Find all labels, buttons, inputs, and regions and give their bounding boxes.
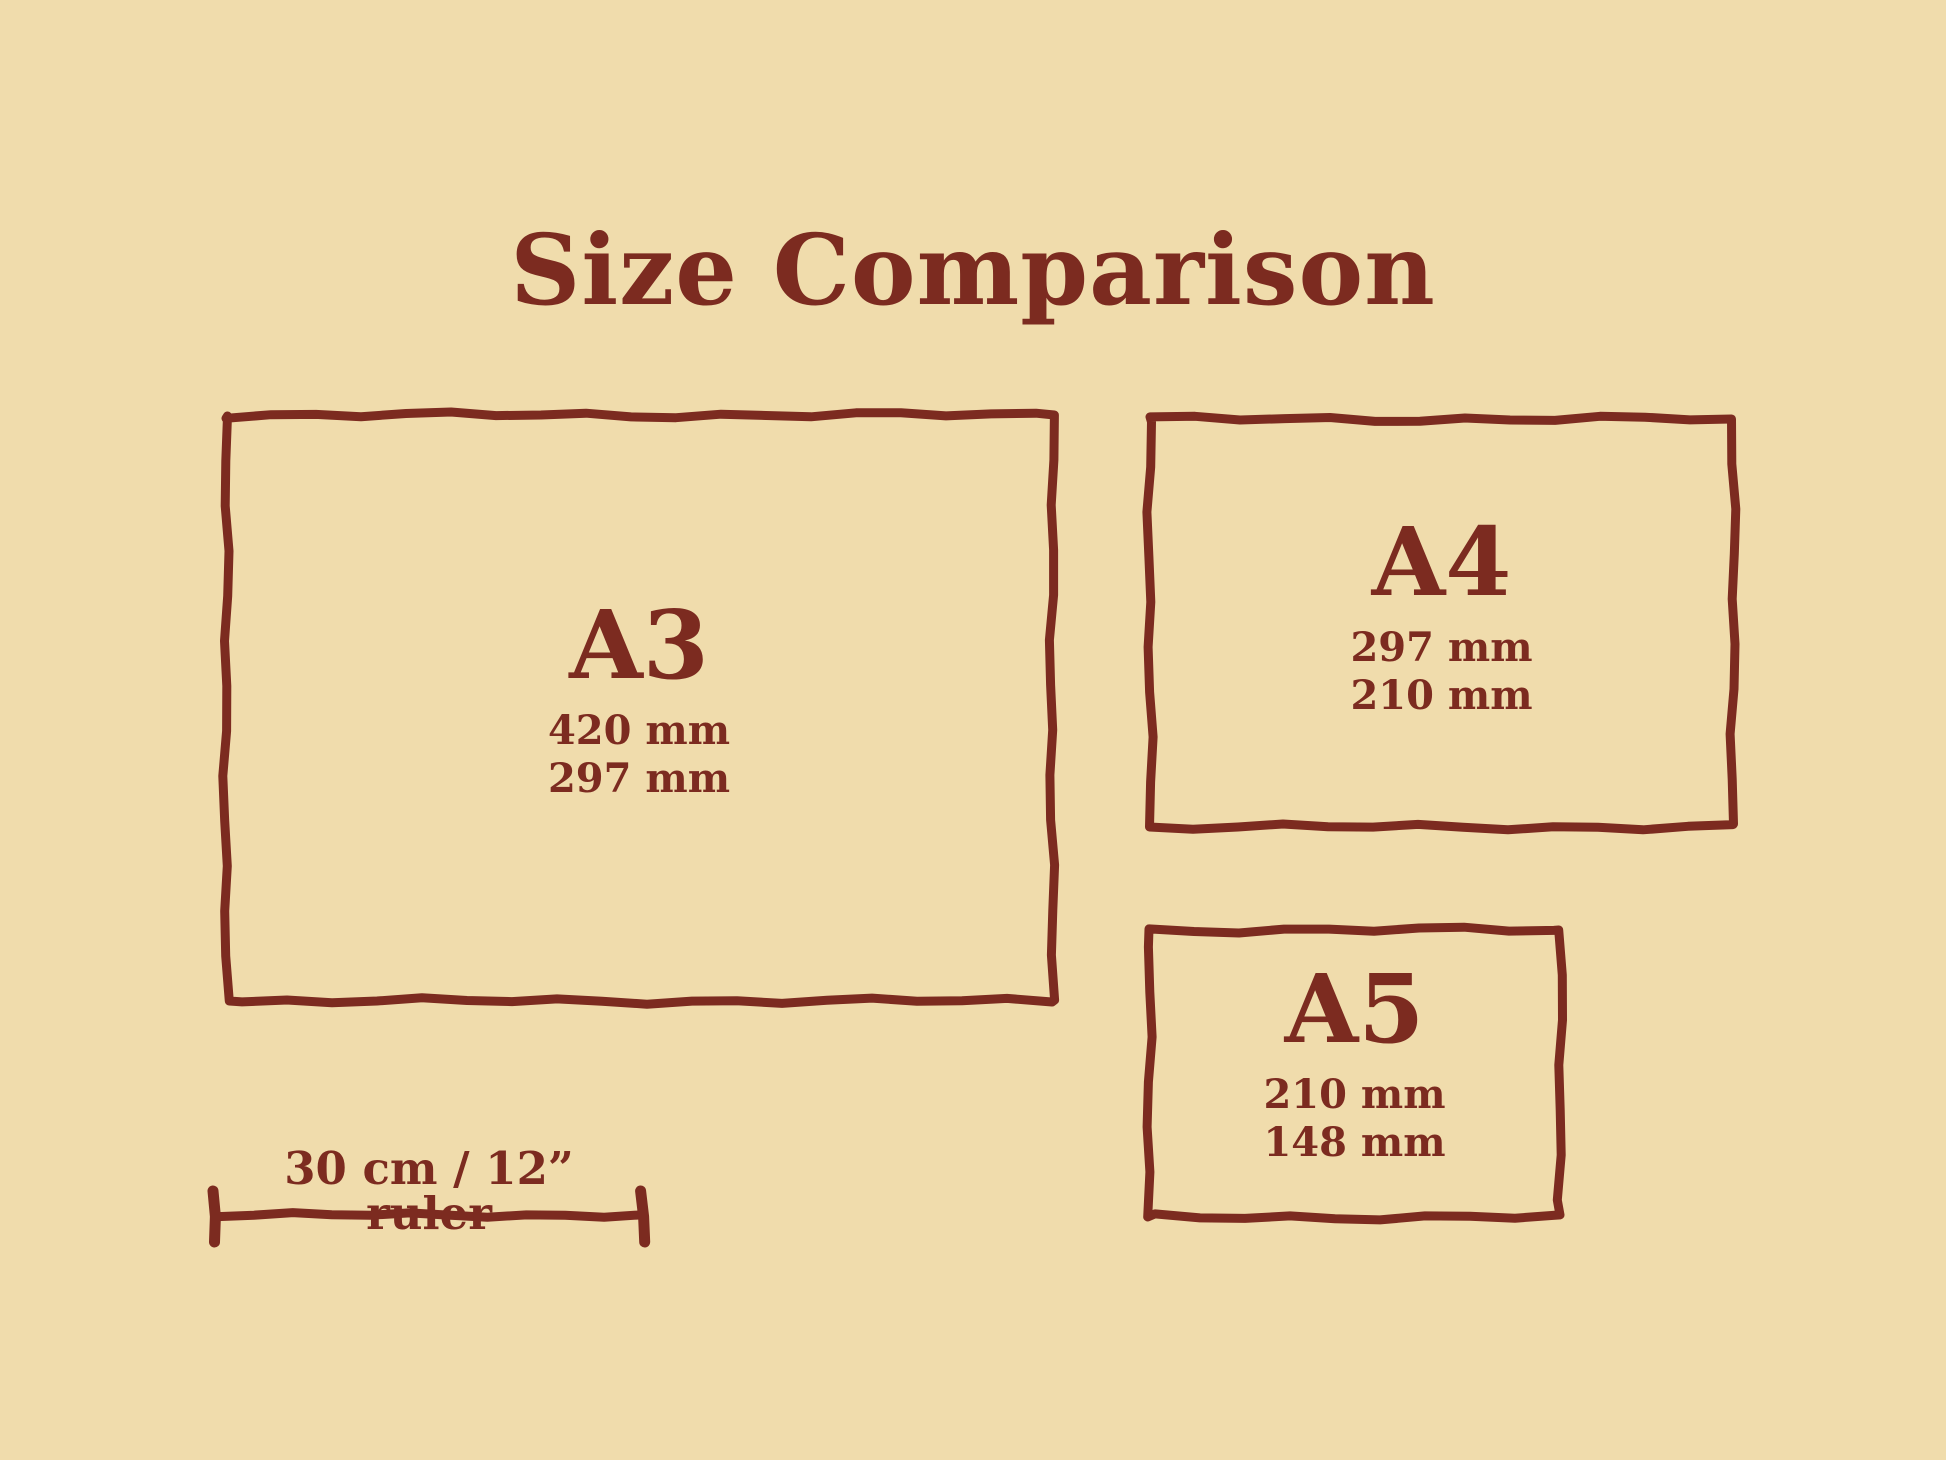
size-comparison-infographic: Size Comparison A3 420 mm 297 mm A4 297 … (0, 0, 1946, 1460)
ruler-label: 30 cm / 12” ruler (215, 1146, 643, 1236)
a3-size-name: A3 (226, 598, 1052, 693)
a3-height-label: 297 mm (226, 755, 1052, 803)
a4-height-label: 210 mm (1150, 672, 1733, 720)
a4-size-name: A4 (1150, 515, 1733, 610)
a3-label-group: A3 420 mm 297 mm (226, 598, 1052, 803)
a3-width-label: 420 mm (226, 707, 1052, 755)
a5-height-label: 148 mm (1149, 1119, 1560, 1167)
a5-width-label: 210 mm (1149, 1071, 1560, 1119)
a4-label-group: A4 297 mm 210 mm (1150, 515, 1733, 720)
a5-size-name: A5 (1149, 962, 1560, 1057)
a4-width-label: 297 mm (1150, 624, 1733, 672)
a5-label-group: A5 210 mm 148 mm (1149, 962, 1560, 1167)
